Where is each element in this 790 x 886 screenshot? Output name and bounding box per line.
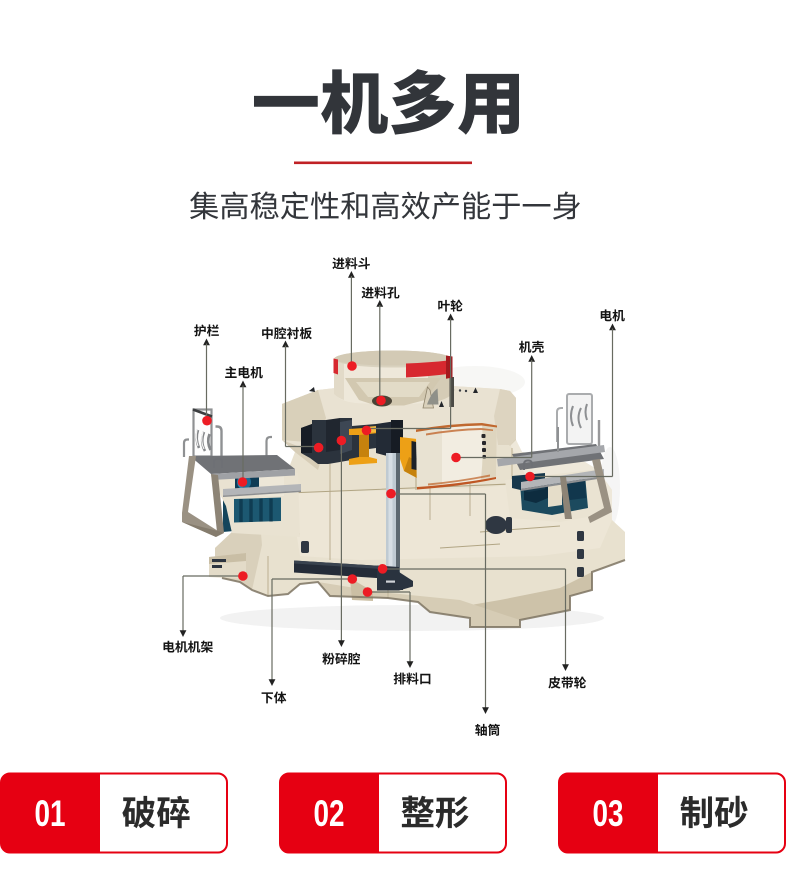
svg-text:03: 03 — [593, 793, 624, 834]
svg-text:02: 02 — [314, 793, 345, 834]
svg-text:01: 01 — [35, 793, 66, 834]
